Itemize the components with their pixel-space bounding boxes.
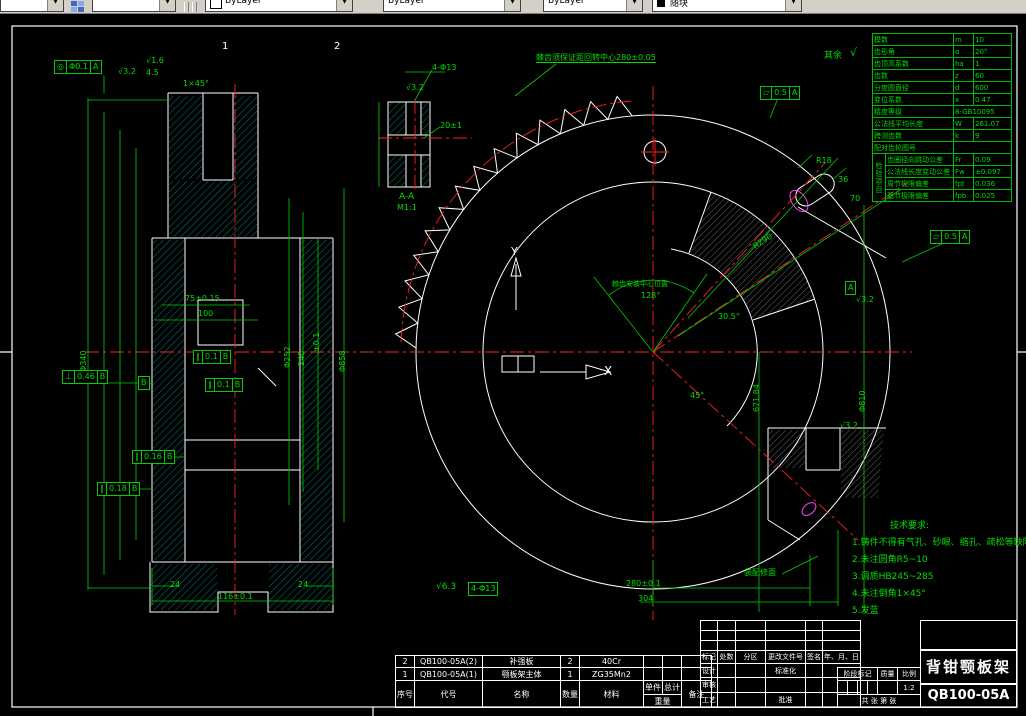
chevron-down-icon[interactable]: ▼ <box>626 0 642 11</box>
gear-parameter-table: 模数m10 齿形角α20° 齿顶高系数ha1 齿数z60 分度圆直径d600 变… <box>872 33 1012 202</box>
gear-row-name: 公法线长度变动公差 <box>886 166 954 178</box>
tech-req-line: 1.铸件不得有气孔、砂眼、缩孔、疏松等缺陷 <box>852 535 1020 552</box>
plotstyle-dropdown[interactable]: 随块 ▼ <box>652 0 802 12</box>
tb-header: 分区 <box>736 651 766 664</box>
tb-stage-label: 阶段标记 <box>838 668 878 681</box>
title-block-main: 背钳颚板架 QB100-05A <box>920 620 1017 708</box>
tb-scale-value: 1:2 <box>898 681 921 695</box>
gear-row-name: 跨测齿数 <box>873 130 954 142</box>
bom-cell: 1 <box>561 668 580 681</box>
ratchet-teeth <box>396 97 633 348</box>
gear-inspection-label: 检验项目 <box>873 154 886 202</box>
color-dropdown-label: ByLayer <box>225 0 262 6</box>
layer-state-dropdown[interactable]: ▼ <box>92 0 176 12</box>
centerlines <box>85 84 912 620</box>
chevron-down-icon[interactable]: ▼ <box>336 0 352 11</box>
bom-cell: 补强板 <box>483 656 561 668</box>
parts-list-table: 2 QB100-05A(2) 补强板 2 40Cr 1 QB100-05A(1)… <box>395 655 712 708</box>
tb-header: 处数 <box>718 651 736 664</box>
gear-row-name: 配对齿轮图号 <box>873 142 954 154</box>
tb-empty-cell <box>920 620 1017 650</box>
bom-header: 材料 <box>580 681 644 708</box>
lineweight-dropdown-label: ByLayer <box>548 0 585 6</box>
bom-header: 名称 <box>483 681 561 708</box>
chevron-down-icon[interactable]: ▼ <box>159 0 175 11</box>
gear-row-name: 公法线平均长度 <box>873 118 954 130</box>
bom-cell: 2 <box>396 656 415 668</box>
gear-row-name: 齿数 <box>873 70 954 82</box>
tb-process: 工艺 <box>701 693 718 708</box>
linetype-dropdown[interactable]: ByLayer ▼ <box>383 0 521 12</box>
bom-header: 代号 <box>415 681 483 708</box>
tb-header: 标记 <box>701 651 718 664</box>
plate-hatch <box>689 192 884 498</box>
tb-scale-label: 比例 <box>898 668 921 681</box>
tech-req-line: 4.未注倒角1×45° <box>852 586 1020 603</box>
technical-requirements: 技术要求: 1.铸件不得有气孔、砂眼、缩孔、疏松等缺陷 2.未注圆角R5~10 … <box>852 518 1020 620</box>
ratchet-plate-view <box>396 97 890 590</box>
plotstyle-dropdown-label: 随块 <box>670 0 688 9</box>
chevron-down-icon[interactable]: ▼ <box>504 0 520 11</box>
bom-cell: 颚板架主体 <box>483 668 561 681</box>
toolbar-grip[interactable] <box>192 2 197 12</box>
ucs-icon <box>502 258 610 379</box>
bom-cell: QB100-05A(2) <box>415 656 483 668</box>
bom-header: 数量 <box>561 681 580 708</box>
title-block-stage: 阶段标记 质量 比例 1:2 共 张 第 张 <box>837 667 921 708</box>
bom-header: 重量 <box>644 695 682 708</box>
tech-req-line: 2.未注圆角R5~10 <box>852 552 1020 569</box>
tb-quality-label: 质量 <box>878 668 898 681</box>
gear-row-name: 周节极限偏差 <box>886 178 954 190</box>
tech-req-line: 3.调质HB245~285 <box>852 569 1020 586</box>
properties-toolbar: ▼ ▼ ByLayer ▼ ByLayer ▼ ByLayer ▼ 随块 ▼ <box>0 0 1026 14</box>
gear-row-name: 模数 <box>873 34 954 46</box>
gear-row-name: 齿顶高系数 <box>873 58 954 70</box>
bom-cell: 2 <box>561 656 580 668</box>
chevron-down-icon[interactable]: ▼ <box>785 0 801 11</box>
tech-req-line: 5.发蓝 <box>852 603 1020 620</box>
chevron-down-icon[interactable]: ▼ <box>47 0 63 11</box>
tb-standard: 标准化 <box>766 664 806 678</box>
plotstyle-icon <box>657 0 665 7</box>
bom-header: 序号 <box>396 681 415 708</box>
bom-cell: QB100-05A(1) <box>415 668 483 681</box>
toolbar-grip[interactable] <box>184 2 189 12</box>
gear-row-name: 齿形角 <box>873 46 954 58</box>
tb-header: 签名 <box>806 651 823 664</box>
bom-cell: 40Cr <box>580 656 644 668</box>
color-swatch-icon <box>210 0 222 9</box>
make-layer-current-icon[interactable] <box>70 0 86 12</box>
tb-sheets: 共 张 第 张 <box>838 695 921 708</box>
tb-design: 设计 <box>701 664 718 678</box>
magenta-features <box>786 187 818 518</box>
bom-cell: ZG35Mn2 <box>580 668 644 681</box>
tech-req-title: 技术要求: <box>852 518 1020 535</box>
gear-row-name: 齿圈径向跳动公差 <box>886 154 954 166</box>
gear-row-name: 变位系数 <box>873 94 954 106</box>
gear-row-name: 基节极限偏差 <box>886 190 954 202</box>
bom-header: 总计 <box>663 681 682 695</box>
gear-row-name: 精度等级 <box>873 106 954 118</box>
bom-cell: 1 <box>396 668 415 681</box>
tb-header: 更改文件号 <box>766 651 806 664</box>
color-dropdown[interactable]: ByLayer ▼ <box>205 0 353 12</box>
tb-check: 审核 <box>701 678 718 693</box>
bom-header: 单件 <box>644 681 663 695</box>
part-title: 背钳颚板架 <box>920 650 1017 684</box>
tb-header: 年、月、日 <box>823 651 861 664</box>
gear-row-name: 分度圆直径 <box>873 82 954 94</box>
lineweight-dropdown[interactable]: ByLayer ▼ <box>543 0 643 12</box>
linetype-dropdown-label: ByLayer <box>388 0 425 6</box>
layer-dropdown[interactable]: ▼ <box>0 0 64 12</box>
drawing-number: QB100-05A <box>920 684 1017 708</box>
tb-approve: 批准 <box>766 693 806 708</box>
section-hatch <box>151 96 429 610</box>
